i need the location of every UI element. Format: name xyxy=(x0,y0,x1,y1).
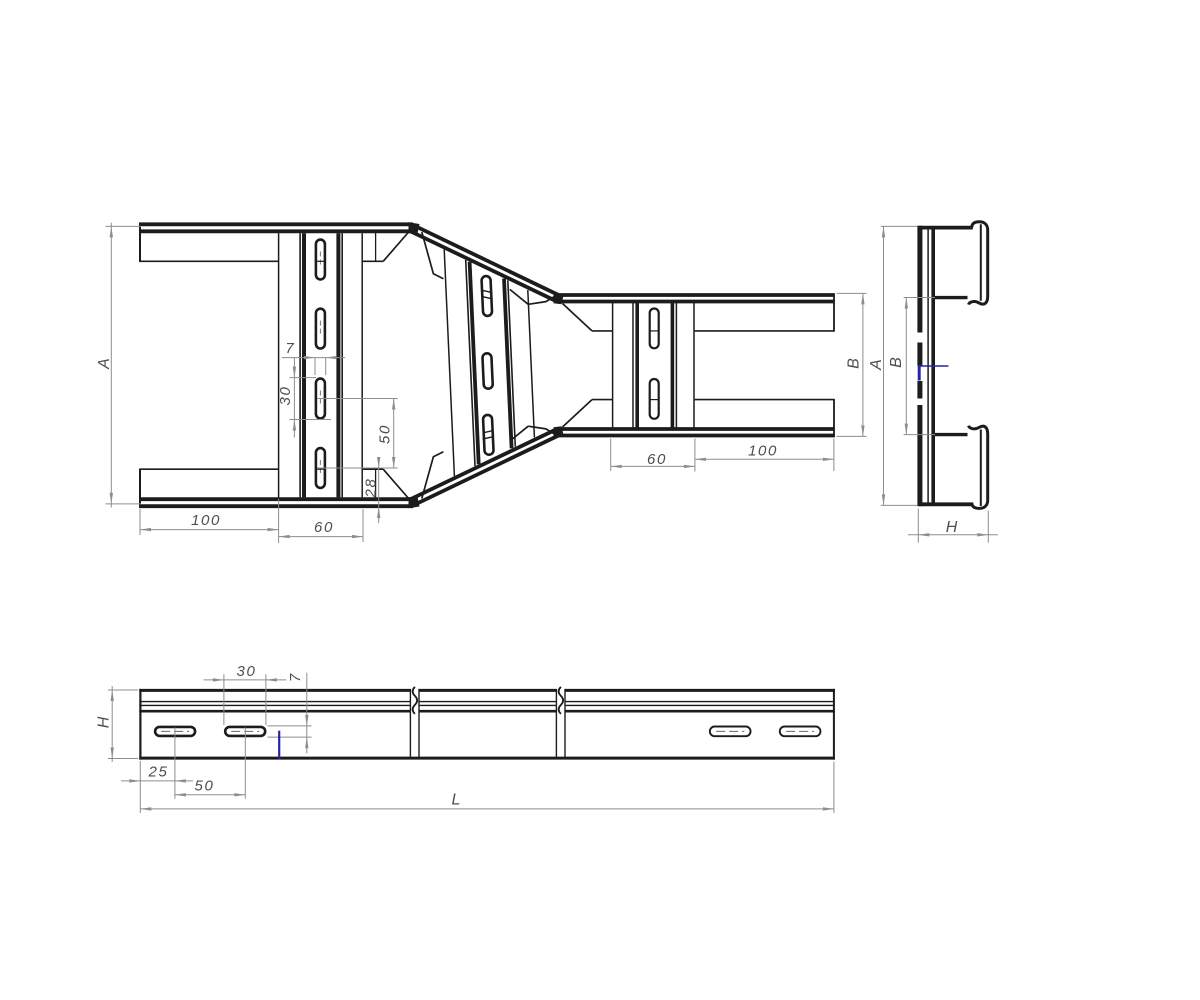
svg-text:100: 100 xyxy=(748,443,778,460)
svg-text:30: 30 xyxy=(277,386,294,406)
svg-text:7: 7 xyxy=(287,673,304,682)
svg-text:H: H xyxy=(946,519,958,536)
svg-text:7: 7 xyxy=(285,340,294,357)
svg-text:100: 100 xyxy=(191,512,221,529)
svg-text:A: A xyxy=(868,359,885,371)
svg-text:B: B xyxy=(846,358,863,369)
svg-text:H: H xyxy=(96,716,113,728)
svg-text:A: A xyxy=(96,358,113,370)
svg-text:B: B xyxy=(888,357,905,368)
svg-text:L: L xyxy=(452,792,461,809)
svg-text:50: 50 xyxy=(195,778,215,795)
svg-text:60: 60 xyxy=(314,519,334,536)
svg-text:25: 25 xyxy=(148,764,169,781)
svg-text:50: 50 xyxy=(377,424,394,444)
svg-text:60: 60 xyxy=(647,451,667,468)
svg-text:30: 30 xyxy=(237,663,257,680)
svg-text:28: 28 xyxy=(363,478,380,499)
